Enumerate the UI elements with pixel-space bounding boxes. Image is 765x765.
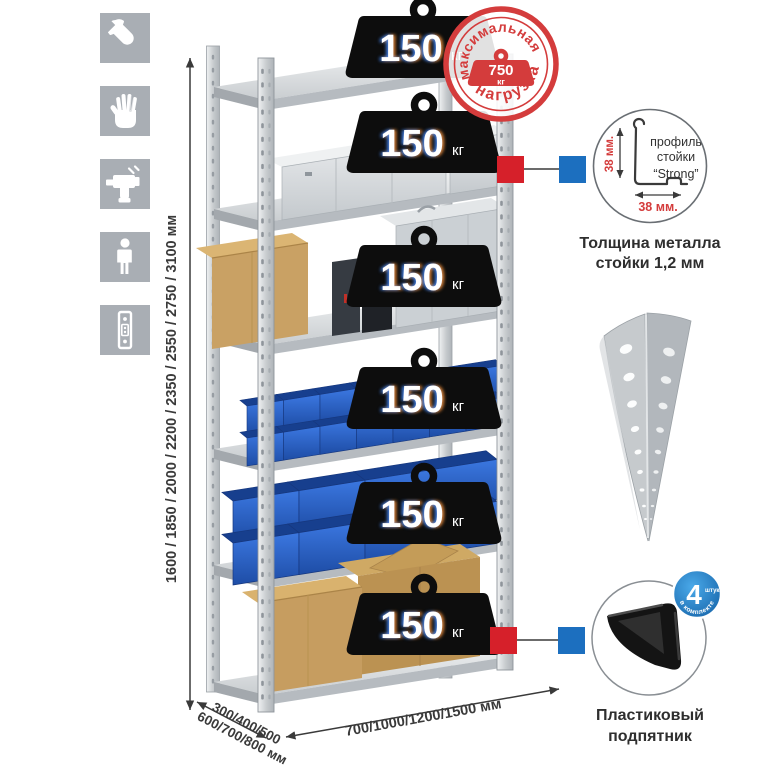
profile-caption-2: стойки 1,2 мм [596, 255, 705, 272]
load-unit: кг [452, 624, 465, 641]
red-marker [490, 627, 517, 654]
profile-detail-circle: 38 мм. 38 мм. профиль стойки “Strong” [594, 110, 707, 223]
profile-label-2: стойки [657, 150, 695, 164]
width-dimension: 700/1000/1200/1500 мм [286, 689, 559, 740]
red-marker [497, 156, 524, 183]
load-unit: кг [452, 513, 465, 530]
blue-marker [559, 156, 586, 183]
profile-dim-horizontal: 38 мм. [638, 200, 677, 214]
kit-small-label: штуки [705, 588, 723, 594]
kit-badge: 4 штуки в комплекте [673, 570, 723, 618]
cardboard-box [196, 233, 308, 349]
load-value: 150 [380, 123, 443, 165]
profile-label-1: профиль [650, 135, 702, 149]
depth-dimension: 300/400/500 600/700/800 мм [195, 695, 297, 765]
load-value: 150 [380, 494, 443, 536]
load-value: 150 [380, 257, 443, 299]
load-unit: кг [452, 398, 465, 415]
blue-marker [558, 627, 585, 654]
profile-label-3: “Strong” [653, 167, 698, 181]
load-value: 150 [380, 379, 443, 421]
connector-top [497, 156, 586, 183]
load-value: 150 [380, 605, 443, 647]
foot-caption-1: Пластиковый [596, 707, 704, 724]
profile-caption-1: Толщина металла [579, 235, 720, 252]
load-unit: кг [452, 276, 465, 293]
kit-count: 4 [686, 579, 702, 610]
height-label: 1600 / 1850 / 2000 / 2200 / 2350 / 2550 … [164, 215, 180, 583]
stamp-unit: кг [497, 77, 505, 87]
profile-dim-vertical: 38 мм. [604, 136, 616, 172]
load-value: 150 [379, 28, 442, 70]
foot-caption-2: подпятник [608, 728, 693, 745]
angle-post-photo [600, 313, 692, 541]
height-dimension: 1600 / 1850 / 2000 / 2200 / 2350 / 2550 … [164, 58, 190, 710]
load-unit: кг [452, 142, 465, 159]
width-label: 700/1000/1200/1500 мм [344, 696, 503, 740]
connector-bottom [490, 627, 585, 654]
shelving-infographic: 150 кг 150 кг 150 кг 150 кг 150 кг 150 к… [0, 0, 765, 765]
